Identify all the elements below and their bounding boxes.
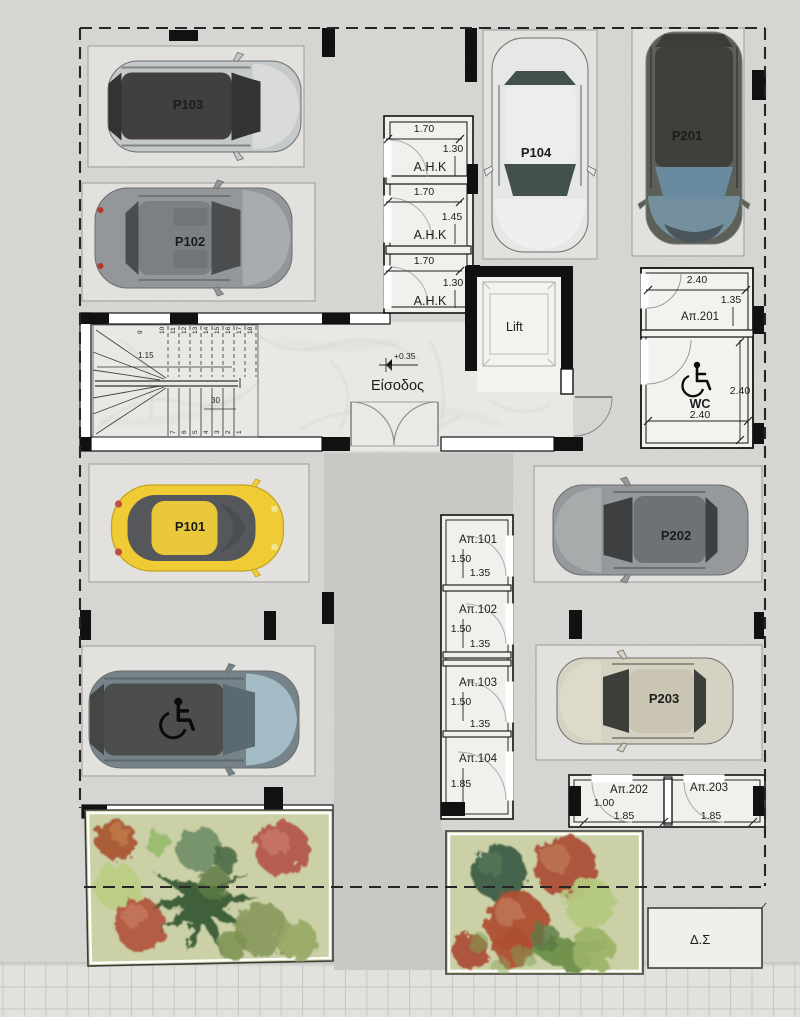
svg-text:1.50: 1.50 bbox=[451, 623, 472, 635]
svg-text:P104: P104 bbox=[521, 145, 552, 160]
svg-text:7: 7 bbox=[170, 430, 177, 434]
svg-text:A.H.K: A.H.K bbox=[414, 294, 447, 308]
svg-text:2: 2 bbox=[225, 430, 232, 434]
svg-text:Απ.102: Απ.102 bbox=[459, 604, 497, 616]
svg-text:P201: P201 bbox=[672, 128, 702, 143]
svg-text:P101: P101 bbox=[175, 519, 205, 534]
svg-text:4: 4 bbox=[203, 430, 210, 434]
svg-text:9: 9 bbox=[137, 330, 144, 334]
svg-text:P203: P203 bbox=[649, 691, 679, 706]
svg-text:10: 10 bbox=[159, 326, 166, 334]
svg-text:1.85: 1.85 bbox=[701, 810, 722, 822]
svg-text:1.30: 1.30 bbox=[443, 277, 464, 289]
svg-text:17: 17 bbox=[236, 326, 243, 334]
svg-text:1.70: 1.70 bbox=[414, 255, 435, 267]
svg-text:13: 13 bbox=[192, 326, 199, 334]
svg-text:1.85: 1.85 bbox=[451, 778, 472, 790]
svg-text:2.40: 2.40 bbox=[687, 274, 708, 286]
svg-text:5: 5 bbox=[192, 430, 199, 434]
svg-text:1.70: 1.70 bbox=[414, 123, 435, 135]
svg-text:Lift: Lift bbox=[506, 320, 523, 334]
svg-text:30: 30 bbox=[211, 396, 220, 405]
svg-text:A.H.K: A.H.K bbox=[414, 228, 447, 242]
svg-text:1.45: 1.45 bbox=[442, 211, 463, 223]
svg-text:14: 14 bbox=[203, 326, 210, 334]
svg-text:3: 3 bbox=[214, 430, 221, 434]
svg-text:Απ.202: Απ.202 bbox=[610, 784, 648, 796]
svg-text:1.85: 1.85 bbox=[614, 810, 635, 822]
svg-text:2.40: 2.40 bbox=[690, 409, 711, 421]
svg-text:1.70: 1.70 bbox=[414, 186, 435, 198]
svg-text:1.30: 1.30 bbox=[443, 143, 464, 155]
svg-text:12: 12 bbox=[181, 326, 188, 334]
svg-text:+0.35: +0.35 bbox=[394, 351, 416, 361]
svg-text:Απ.103: Απ.103 bbox=[459, 677, 497, 689]
svg-text:P202: P202 bbox=[661, 528, 691, 543]
svg-text:1.35: 1.35 bbox=[470, 718, 491, 730]
svg-text:1.35: 1.35 bbox=[470, 567, 491, 579]
svg-text:Είσοδος: Είσοδος bbox=[371, 378, 424, 394]
svg-text:Απ.104: Απ.104 bbox=[459, 753, 498, 765]
svg-text:15: 15 bbox=[214, 326, 221, 334]
svg-text:6: 6 bbox=[181, 430, 188, 434]
svg-text:1.15: 1.15 bbox=[138, 351, 154, 360]
svg-text:2.40: 2.40 bbox=[730, 385, 751, 397]
svg-text:1: 1 bbox=[236, 430, 243, 434]
svg-text:A.H.K: A.H.K bbox=[414, 160, 447, 174]
svg-text:18: 18 bbox=[247, 326, 254, 334]
svg-text:Απ.101: Απ.101 bbox=[459, 534, 497, 546]
svg-text:1.50: 1.50 bbox=[451, 696, 472, 708]
svg-text:1.00: 1.00 bbox=[594, 797, 615, 809]
svg-text:16: 16 bbox=[225, 326, 232, 334]
svg-text:Απ.203: Απ.203 bbox=[690, 782, 728, 794]
svg-text:P102: P102 bbox=[175, 234, 205, 249]
svg-text:Απ.201: Απ.201 bbox=[681, 311, 719, 323]
svg-text:P103: P103 bbox=[173, 97, 203, 112]
svg-text:1.35: 1.35 bbox=[470, 638, 491, 650]
svg-text:1.50: 1.50 bbox=[451, 553, 472, 565]
svg-text:1.35: 1.35 bbox=[721, 294, 742, 306]
svg-text:11: 11 bbox=[170, 327, 177, 334]
svg-text:Δ.Σ: Δ.Σ bbox=[690, 932, 710, 947]
